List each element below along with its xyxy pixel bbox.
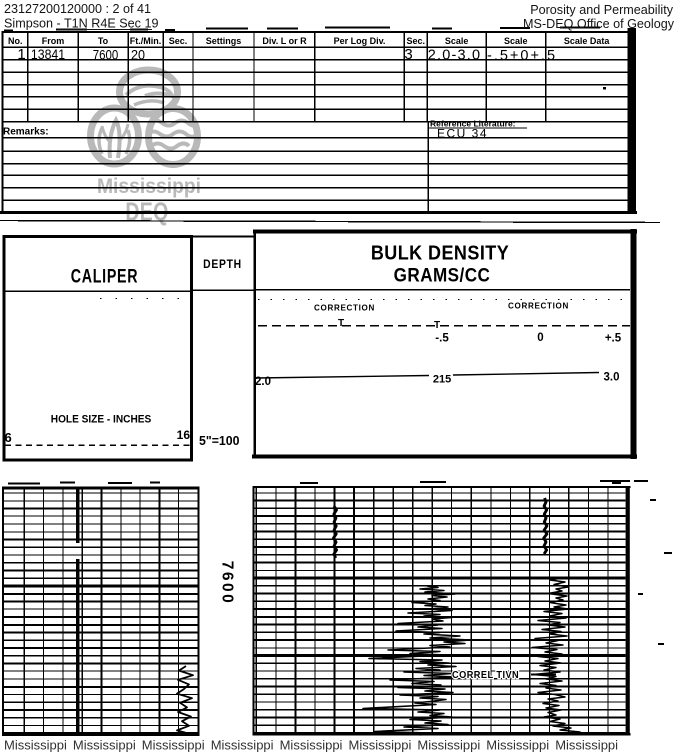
svg-text:To: To (98, 36, 109, 46)
svg-text:Mississippi: Mississippi (4, 738, 67, 753)
svg-text:DEPTH: DEPTH (203, 259, 242, 272)
svg-text:Settings: Settings (206, 36, 242, 46)
svg-text:Scale: Scale (445, 36, 469, 46)
svg-text:Mississippi: Mississippi (486, 738, 549, 753)
svg-text:23127200120000 : 2 of 41: 23127200120000 : 2 of 41 (4, 2, 151, 16)
svg-text:6: 6 (5, 430, 12, 445)
svg-text:13841: 13841 (31, 46, 65, 62)
svg-text:Mississippi: Mississippi (142, 738, 205, 753)
svg-text:Simpson - T1N R4E Sec 19: Simpson - T1N R4E Sec 19 (4, 17, 158, 31)
svg-text:-.5+0+.5: -.5+0+.5 (487, 48, 557, 64)
svg-text:2.0-3.0: 2.0-3.0 (428, 48, 482, 64)
svg-text:0: 0 (537, 332, 543, 344)
svg-text:From: From (42, 36, 65, 46)
svg-text:16: 16 (177, 428, 191, 442)
svg-text:Mississippi: Mississippi (211, 738, 274, 753)
svg-text:Mississippi: Mississippi (97, 175, 201, 198)
svg-text:Sec.: Sec. (169, 36, 188, 46)
svg-text:GRAMS/CC: GRAMS/CC (394, 265, 491, 286)
svg-text:Remarks:: Remarks: (3, 127, 49, 138)
svg-text:7600: 7600 (219, 561, 236, 605)
svg-text:Per Log Div.: Per Log Div. (334, 36, 386, 46)
svg-text:CORRECTION: CORRECTION (508, 300, 569, 310)
svg-text:Sec.: Sec. (406, 36, 425, 46)
svg-text:HOLE SIZE - INCHES: HOLE SIZE - INCHES (51, 413, 151, 425)
svg-text:Mississippi: Mississippi (73, 738, 136, 753)
svg-text:2.0: 2.0 (255, 376, 271, 388)
svg-text:ECU 34: ECU 34 (437, 127, 488, 141)
svg-text:CALIPER: CALIPER (71, 265, 139, 287)
svg-text:Mississippi: Mississippi (555, 738, 618, 753)
svg-text:20: 20 (131, 47, 145, 63)
svg-text:7600: 7600 (93, 46, 119, 62)
svg-text:1: 1 (17, 46, 25, 63)
svg-text:Mississippi: Mississippi (349, 738, 412, 753)
svg-text:-.5: -.5 (435, 333, 449, 345)
svg-text:+.5: +.5 (605, 333, 622, 345)
svg-text:Mississippi: Mississippi (280, 738, 343, 753)
svg-text:No.: No. (8, 36, 22, 46)
svg-text:Div. L or R: Div. L or R (262, 36, 307, 46)
svg-text:MS-DEQ Office of Geology: MS-DEQ Office of Geology (523, 17, 675, 31)
svg-text:Porosity and Permeability: Porosity and Permeability (530, 3, 673, 17)
svg-text:Ft./Min.: Ft./Min. (130, 36, 162, 46)
svg-text:5"=100: 5"=100 (199, 434, 239, 448)
svg-text:3.0: 3.0 (604, 372, 620, 384)
svg-text:T: T (434, 320, 440, 331)
svg-text:Scale: Scale (504, 36, 528, 46)
svg-text:T: T (338, 318, 344, 329)
svg-text:3: 3 (404, 46, 412, 63)
svg-text:CORRECTION: CORRECTION (314, 302, 375, 312)
svg-text:CORREL TIVN: CORREL TIVN (452, 670, 519, 681)
svg-text:215: 215 (433, 374, 451, 386)
svg-text:Mississippi: Mississippi (417, 738, 480, 753)
svg-text:BULK DENSITY: BULK DENSITY (371, 243, 509, 265)
svg-text:Scale Data: Scale Data (564, 36, 611, 46)
